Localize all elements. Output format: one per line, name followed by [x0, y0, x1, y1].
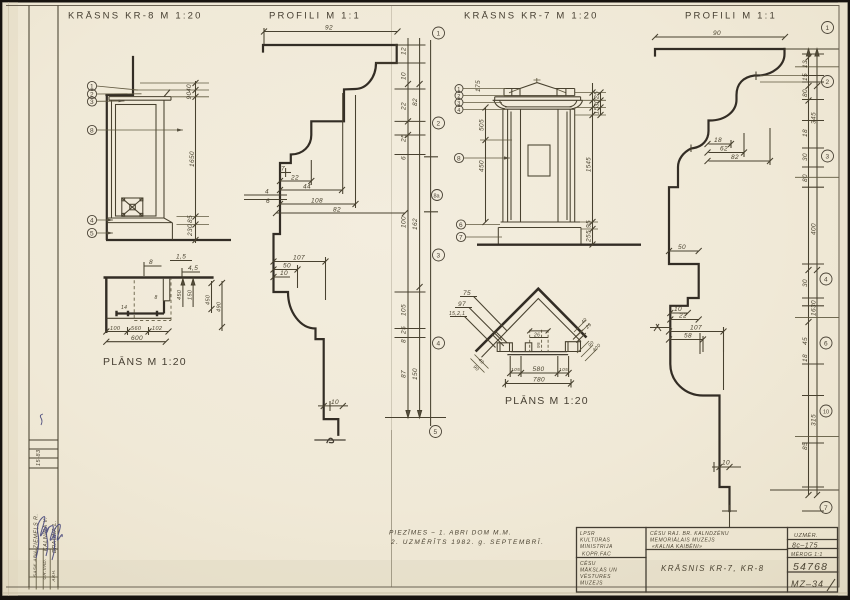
svg-text:MINISTRIJA: MINISTRIJA	[580, 544, 613, 550]
svg-text:4: 4	[265, 189, 269, 196]
svg-text:6: 6	[266, 198, 270, 205]
svg-text:KOPR.FAC: KOPR.FAC	[582, 552, 611, 558]
svg-text:PROFILI M 1:1: PROFILI M 1:1	[269, 11, 361, 22]
svg-text:18: 18	[802, 354, 809, 362]
svg-text:82: 82	[731, 154, 739, 161]
svg-text:1650: 1650	[189, 151, 196, 167]
svg-text:5: 5	[90, 231, 94, 238]
svg-text:18: 18	[714, 137, 722, 144]
svg-text:10: 10	[823, 410, 829, 416]
svg-text:450: 450	[206, 294, 212, 305]
svg-text:4: 4	[824, 277, 828, 284]
svg-text:82: 82	[333, 207, 341, 214]
svg-text:345: 345	[811, 112, 818, 124]
svg-text:10: 10	[280, 270, 288, 277]
svg-text:1: 1	[826, 25, 830, 32]
svg-text:MZ–34: MZ–34	[791, 579, 824, 589]
svg-text:8: 8	[90, 128, 94, 135]
svg-text:PLĀNS M 1:20: PLĀNS M 1:20	[103, 356, 187, 368]
svg-text:15: 15	[594, 106, 601, 114]
svg-text:MĒROG 1:1: MĒROG 1:1	[791, 551, 823, 558]
svg-text:8a: 8a	[434, 194, 441, 200]
svg-text:105: 105	[401, 304, 408, 316]
svg-text:7: 7	[824, 505, 828, 512]
svg-text:2: 2	[826, 79, 830, 86]
svg-text:22: 22	[290, 175, 299, 182]
svg-text:82: 82	[412, 98, 419, 106]
svg-text:450: 450	[177, 289, 183, 300]
svg-text:25: 25	[401, 326, 408, 335]
svg-text:8: 8	[457, 156, 461, 163]
svg-text:MĀKSLAS UN: MĀKSLAS UN	[580, 567, 617, 574]
svg-text:UZMĒR.: UZMĒR.	[794, 532, 818, 539]
svg-text:90: 90	[186, 91, 193, 99]
svg-text:15-83.: 15-83.	[36, 447, 42, 466]
svg-text:MUZEJS: MUZEJS	[580, 581, 603, 587]
svg-text:MEMORIĀLAIS MUZEJS: MEMORIĀLAIS MUZEJS	[650, 537, 715, 544]
svg-text:PROFILI M 1:1: PROFILI M 1:1	[685, 11, 777, 22]
svg-text:10: 10	[722, 460, 730, 467]
svg-text:5: 5	[434, 429, 438, 436]
svg-text:1,5: 1,5	[176, 254, 186, 261]
svg-text:15: 15	[802, 73, 809, 81]
svg-text:90: 90	[713, 30, 721, 37]
svg-text:3: 3	[437, 253, 441, 260]
svg-text:490: 490	[216, 301, 222, 312]
svg-text:18: 18	[802, 129, 809, 137]
svg-text:2: 2	[437, 121, 441, 128]
svg-text:80: 80	[802, 89, 809, 97]
svg-text:1545: 1545	[587, 157, 593, 172]
svg-text:7: 7	[459, 235, 463, 242]
svg-text:7: 7	[281, 166, 285, 173]
svg-text:62: 62	[720, 146, 728, 153]
svg-text:105: 105	[511, 367, 520, 373]
svg-text:58: 58	[684, 333, 692, 340]
svg-text:30: 30	[594, 99, 601, 107]
svg-text:1: 1	[437, 31, 441, 38]
svg-text:230: 230	[187, 224, 194, 237]
svg-text:50: 50	[283, 263, 291, 270]
svg-text:3: 3	[90, 99, 94, 106]
svg-text:315: 315	[811, 414, 818, 426]
svg-text:40: 40	[186, 84, 193, 92]
svg-text:780: 780	[533, 377, 545, 384]
svg-text:400: 400	[811, 223, 818, 235]
svg-text:85: 85	[187, 215, 194, 223]
svg-text:22: 22	[401, 102, 408, 111]
svg-text:4: 4	[90, 218, 94, 225]
svg-text:107: 107	[690, 325, 702, 332]
svg-text:4,5: 4,5	[188, 265, 198, 272]
svg-text:KULTŪRAS: KULTŪRAS	[580, 537, 610, 544]
svg-text:175: 175	[475, 80, 482, 92]
svg-text:505: 505	[479, 119, 486, 131]
svg-text:8: 8	[149, 259, 153, 266]
svg-text:44: 44	[303, 184, 311, 191]
svg-text:KRĀSNIS KR-7, KR-8: KRĀSNIS KR-7, KR-8	[661, 564, 764, 573]
svg-text:CĒSU: CĒSU	[580, 560, 596, 567]
svg-text:150: 150	[187, 289, 193, 300]
svg-text:VĒSTURES: VĒSTURES	[580, 573, 611, 580]
svg-text:8c–175: 8c–175	[792, 543, 818, 550]
svg-text:13: 13	[802, 60, 809, 68]
svg-text:150: 150	[412, 368, 419, 380]
svg-text:1630: 1630	[811, 300, 818, 316]
svg-text:25: 25	[401, 134, 408, 143]
svg-text:8: 8	[155, 295, 158, 301]
svg-text:100: 100	[401, 216, 408, 228]
svg-text:100: 100	[110, 326, 121, 332]
svg-text:30: 30	[802, 279, 809, 287]
svg-text:95: 95	[586, 220, 593, 228]
svg-text:6: 6	[824, 341, 828, 348]
svg-text:LPSR: LPSR	[580, 531, 595, 537]
svg-text:80: 80	[802, 174, 809, 182]
svg-text:50: 50	[678, 244, 686, 251]
svg-text:GR.VAD.: GR.VAD.	[42, 558, 47, 579]
svg-text:3: 3	[826, 154, 830, 161]
svg-text:PLĀNS M 1:20: PLĀNS M 1:20	[505, 395, 589, 407]
svg-text:10: 10	[401, 72, 408, 80]
svg-text:600: 600	[131, 335, 143, 342]
svg-text:6: 6	[401, 156, 408, 160]
svg-text:KRĀSNS KR-8 M 1:20: KRĀSNS KR-8 M 1:20	[68, 11, 203, 22]
svg-text:105: 105	[559, 367, 568, 373]
svg-text:580: 580	[533, 366, 545, 373]
svg-text:4: 4	[457, 108, 460, 114]
svg-text:162: 162	[412, 218, 419, 230]
svg-text:97: 97	[458, 301, 466, 308]
svg-text:45: 45	[802, 337, 809, 345]
svg-text:560: 560	[131, 326, 142, 332]
svg-text:8: 8	[401, 339, 408, 343]
svg-text:255: 255	[586, 230, 593, 243]
svg-text:KRĀSNS KR-7 M 1:20: KRĀSNS KR-7 M 1:20	[464, 11, 599, 22]
svg-text:4: 4	[437, 341, 441, 348]
svg-text:25: 25	[594, 91, 601, 100]
svg-text:85: 85	[802, 442, 809, 450]
svg-text:10: 10	[331, 399, 339, 406]
svg-text:«KALNA KAIBĒNI»: «KALNA KAIBĒNI»	[652, 543, 702, 550]
svg-text:87: 87	[401, 370, 408, 378]
svg-text:30: 30	[802, 153, 809, 161]
svg-text:CĒSU RAJ. BR. KALNDZĒNU: CĒSU RAJ. BR. KALNDZĒNU	[650, 530, 729, 537]
svg-text:108: 108	[311, 198, 323, 205]
svg-text:2. UZMĒRĪTS 1982. g. SEPTEMBRĪ: 2. UZMĒRĪTS 1982. g. SEPTEMBRĪ.	[390, 538, 544, 546]
svg-text:PIEZĪMES ~ 1. ABRI DOM M.M.: PIEZĪMES ~ 1. ABRI DOM M.M.	[389, 529, 512, 537]
svg-text:15,2,1: 15,2,1	[449, 311, 465, 317]
svg-text:450: 450	[479, 160, 486, 172]
svg-text:102: 102	[152, 326, 162, 332]
svg-text:95: 95	[536, 342, 541, 348]
svg-text:75: 75	[463, 290, 471, 297]
svg-text:92: 92	[325, 25, 333, 32]
svg-text:54768: 54768	[793, 561, 828, 573]
svg-text:107: 107	[293, 255, 305, 262]
svg-text:22: 22	[678, 313, 687, 320]
svg-text:14: 14	[121, 305, 127, 311]
svg-text:26: 26	[533, 332, 540, 338]
svg-text:12: 12	[401, 47, 408, 55]
svg-text:6: 6	[459, 222, 463, 229]
svg-text:ARH.: ARH.	[51, 569, 56, 583]
